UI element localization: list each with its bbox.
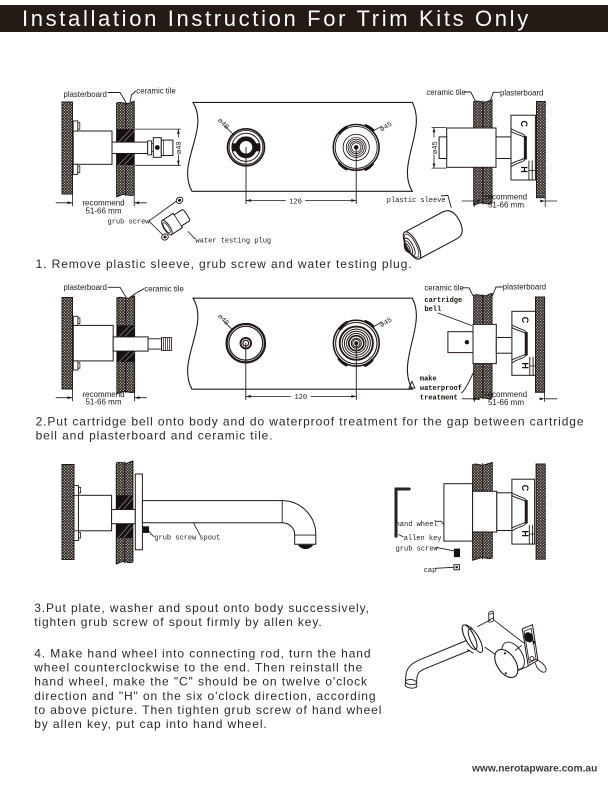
svg-text:ceramic tile: ceramic tile [144, 284, 183, 293]
svg-text:wheel counterclockwise to the: wheel counterclockwise to the end. Then … [33, 661, 363, 675]
svg-text:51-66 mm: 51-66 mm [85, 398, 121, 407]
svg-text:bell and plasterboard and cera: bell and plasterboard and ceramic tile. [36, 428, 274, 442]
svg-text:hand wheel: hand wheel [396, 521, 438, 529]
svg-text:grub screw: grub screw [396, 545, 439, 553]
svg-text:120: 120 [294, 394, 307, 402]
svg-text:120: 120 [289, 198, 302, 206]
svg-text:plasterboard: plasterboard [500, 88, 543, 97]
svg-text:C: C [520, 317, 530, 324]
svg-text:51-66 mm: 51-66 mm [488, 398, 524, 407]
svg-text:spout: spout [199, 534, 220, 542]
svg-text:make: make [420, 376, 437, 384]
svg-text:C: C [519, 121, 529, 128]
svg-text:hand wheel, make the "C" shoul: hand wheel, make the "C" should be on tw… [34, 675, 368, 689]
svg-text:1. Remove plastic sleeve, grub: 1. Remove plastic sleeve, grub screw and… [36, 257, 413, 271]
svg-text:3.Put plate, washer and spout: 3.Put plate, washer and spout onto body … [34, 601, 370, 615]
svg-text:cap: cap [424, 567, 437, 575]
svg-text:bell: bell [424, 306, 441, 314]
svg-text:ø40: ø40 [176, 141, 184, 154]
svg-text:to above picture. Then tighten: to above picture. Then tighten grub scre… [34, 703, 382, 717]
svg-text:H: H [519, 166, 529, 173]
svg-text:grub screw: grub screw [108, 219, 151, 227]
svg-text:water testing plug: water testing plug [196, 237, 272, 245]
svg-text:plasterboard: plasterboard [64, 90, 107, 99]
svg-text:ceramic tile: ceramic tile [424, 284, 463, 293]
svg-text:ceramic tile: ceramic tile [136, 87, 175, 96]
svg-text:waterproof: waterproof [420, 385, 462, 393]
svg-text:www.nerotapware.com.au: www.nerotapware.com.au [471, 763, 597, 774]
svg-text:direction and "H" on the six o: direction and "H" on the six o'clock dir… [34, 689, 376, 703]
svg-text:plasterboard: plasterboard [64, 283, 107, 292]
svg-text:C: C [520, 485, 530, 492]
svg-text:grub screw: grub screw [154, 534, 197, 542]
svg-text:Installation Instruction For T: Installation Instruction For Trim Kits O… [22, 6, 531, 31]
svg-text:allen key: allen key [404, 535, 442, 543]
svg-text:51-66 mm: 51-66 mm [488, 201, 524, 210]
svg-text:plasterboard: plasterboard [503, 283, 546, 292]
svg-text:ø45: ø45 [432, 141, 440, 154]
svg-text:H: H [520, 530, 530, 537]
svg-text:4. Make hand wheel into connec: 4. Make hand wheel into connecting rod, … [34, 647, 371, 661]
svg-text:cartridge: cartridge [424, 297, 462, 305]
svg-text:2.Put cartridge bell onto body: 2.Put cartridge bell onto body and do wa… [36, 415, 585, 429]
svg-text:51-66 mm: 51-66 mm [85, 206, 121, 215]
svg-text:treatment: treatment [420, 395, 458, 403]
svg-text:by allen key, put cap into han: by allen key, put cap into hand wheel. [34, 717, 267, 731]
svg-text:ceramic tile: ceramic tile [426, 88, 465, 97]
svg-text:H: H [520, 362, 530, 369]
svg-text:plastic sleeve: plastic sleeve [387, 197, 446, 205]
svg-text:tighten grub screw of spout fi: tighten grub screw of spout firmly by al… [34, 615, 322, 629]
